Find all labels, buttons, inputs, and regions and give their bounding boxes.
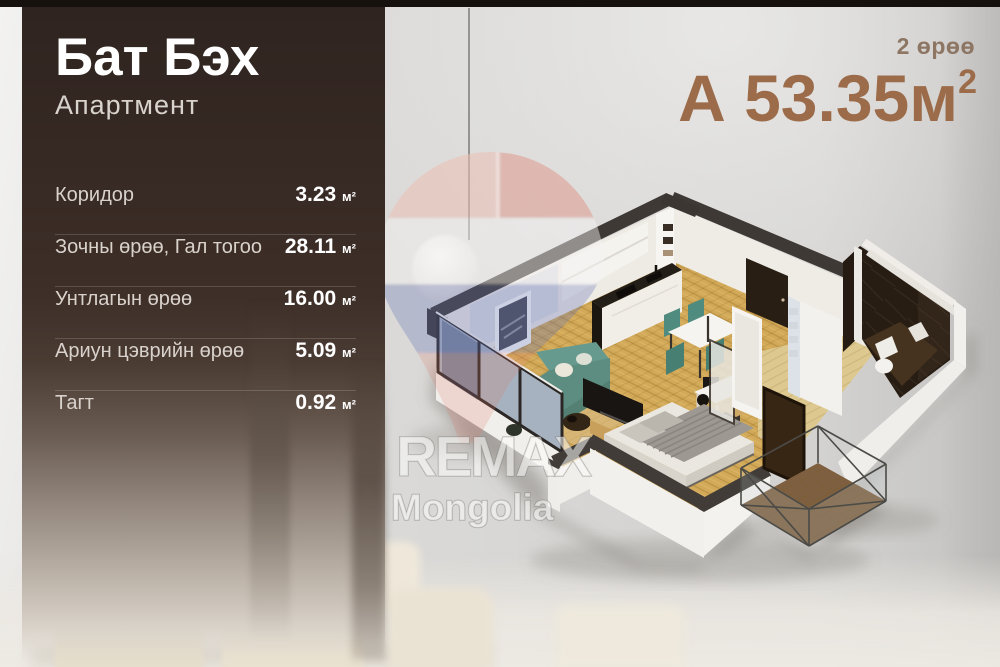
svg-text:Mongolia: Mongolia	[391, 487, 554, 528]
svg-text:REMAX: REMAX	[396, 425, 592, 489]
